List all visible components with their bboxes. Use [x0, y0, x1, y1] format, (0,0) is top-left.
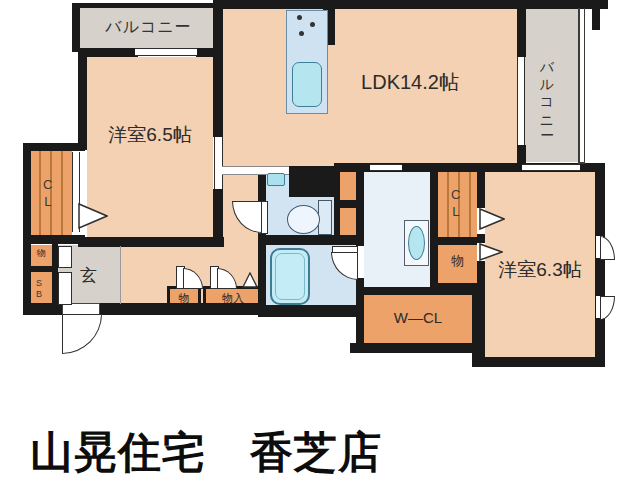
- wall: [258, 305, 360, 317]
- storage-right-label: 物: [438, 254, 477, 268]
- balcony-left-label: バルコニー: [79, 18, 218, 36]
- wall: [78, 48, 138, 57]
- window: [135, 48, 197, 56]
- wall: [592, 0, 600, 30]
- wall: [78, 55, 87, 150]
- wall: [23, 303, 62, 315]
- window: [522, 164, 580, 171]
- wall: [437, 237, 481, 245]
- agency-title: 山晃住宅 香芝店: [30, 424, 382, 480]
- wall: [213, 189, 223, 245]
- bedroom-63-label: 洋室6.3帖: [483, 260, 597, 281]
- window: [370, 164, 402, 171]
- storage-hall-closet-label: 物入: [203, 292, 263, 304]
- kitchen-sink: [292, 62, 322, 107]
- ldk-label: LDK14.2帖: [330, 71, 490, 93]
- window-arc: [600, 296, 615, 320]
- wall: [430, 163, 438, 295]
- stove-burner: [299, 31, 304, 36]
- sliding-door: [517, 57, 525, 145]
- door-arrow: [242, 272, 258, 288]
- balcony-railing: [578, 8, 580, 164]
- wall: [340, 200, 356, 208]
- wall: [23, 143, 85, 151]
- balcony-right-label: バルコニー: [539, 33, 554, 148]
- door-arrow: [479, 208, 505, 230]
- storage-hall-label: 物: [167, 292, 201, 304]
- wall: [433, 283, 481, 290]
- stove-burner: [297, 15, 302, 20]
- wall: [78, 237, 224, 247]
- bedroom-65-label: 洋室6.5帖: [87, 125, 213, 146]
- shoe-box-label: SB: [33, 277, 43, 301]
- closet-right-label: CL: [448, 178, 462, 230]
- stove-burner: [310, 22, 315, 27]
- wall: [258, 235, 358, 245]
- wall: [72, 3, 220, 8]
- wall: [356, 166, 364, 246]
- toilet-tank: [318, 200, 332, 235]
- wall: [30, 266, 52, 272]
- window-arc: [600, 236, 615, 260]
- door-arrow: [78, 203, 108, 229]
- toilet-hand-sink: [267, 173, 285, 186]
- folding-door: [58, 246, 72, 268]
- bathtub-inner-line: [275, 253, 305, 300]
- vanity-basin: [408, 226, 425, 260]
- wall: [100, 303, 262, 315]
- sliding-door: [214, 137, 223, 189]
- door-arc: [62, 314, 102, 354]
- toilet-bowl: [287, 205, 320, 234]
- wall: [289, 166, 339, 197]
- balcony-railing: [584, 8, 585, 164]
- wall: [472, 357, 605, 367]
- wall: [517, 8, 526, 57]
- wall: [350, 343, 480, 353]
- wall: [23, 235, 85, 244]
- storage-left-label: 物: [30, 249, 52, 259]
- entrance-step-line: [120, 246, 121, 304]
- floor-plan: バルコニー バルコニー LDK14.2帖 洋室6.5帖 洋室6.3帖 玄 W―C…: [0, 0, 640, 480]
- closet-left-label: CL: [40, 166, 54, 221]
- wall: [218, 0, 608, 9]
- walk-in-closet-label: W―CL: [364, 310, 472, 327]
- entrance-label: 玄: [57, 267, 120, 286]
- wall: [23, 143, 31, 315]
